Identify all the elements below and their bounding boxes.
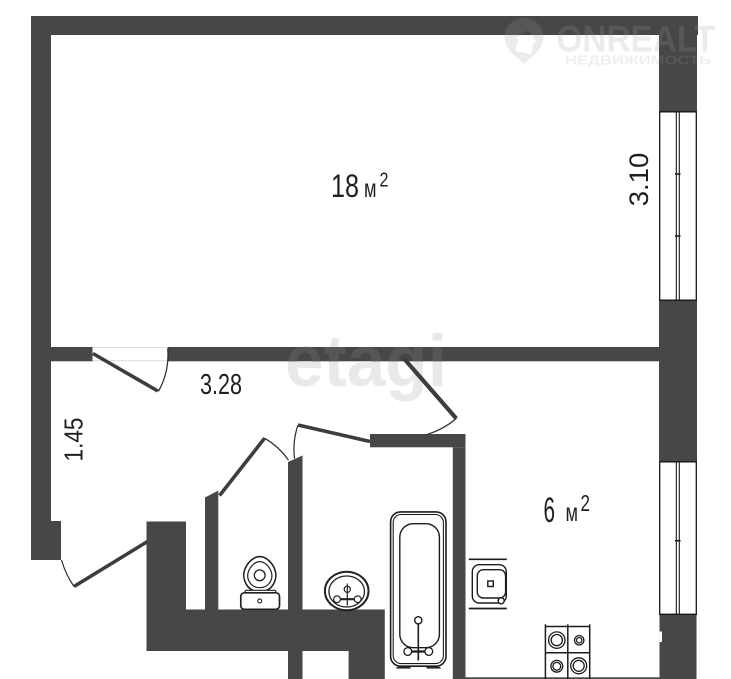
svg-text:м: м <box>364 175 377 203</box>
svg-text:3.28: 3.28 <box>200 369 242 401</box>
svg-text:2: 2 <box>380 169 389 192</box>
svg-text:2: 2 <box>581 490 591 516</box>
svg-text:6: 6 <box>544 491 556 530</box>
svg-text:18: 18 <box>331 168 359 204</box>
svg-text:3.10: 3.10 <box>624 153 654 207</box>
svg-text:м: м <box>566 499 579 527</box>
svg-text:etagi: etagi <box>285 321 447 402</box>
svg-text:1.45: 1.45 <box>61 418 89 462</box>
